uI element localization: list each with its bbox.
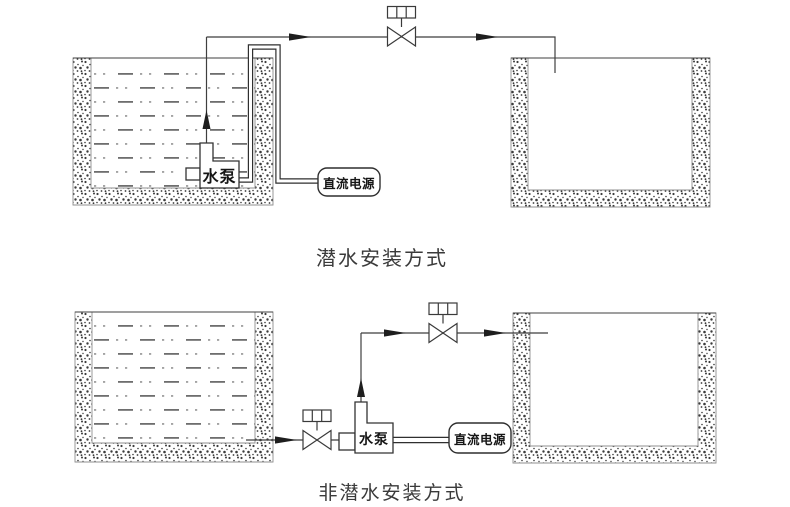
dc-power-label: 直流电源 bbox=[318, 168, 380, 196]
tank-top-right-wall bbox=[511, 58, 710, 207]
water bbox=[91, 62, 255, 443]
power-cable-top bbox=[239, 47, 318, 181]
pump-label: 水泵 bbox=[355, 424, 393, 453]
gate-valve-icon bbox=[303, 410, 331, 450]
flow-arrow-icon bbox=[275, 436, 297, 443]
diagram-caption-submersible: 潜水安装方式 bbox=[262, 243, 502, 269]
tank-bottom-right-wall bbox=[513, 313, 716, 463]
gate-valve-icon bbox=[388, 7, 416, 47]
gate-valve-icon bbox=[429, 303, 457, 343]
pump-inlet-stub bbox=[186, 168, 200, 180]
flow-arrow-icon bbox=[384, 329, 406, 336]
pump-label: 水泵 bbox=[200, 161, 239, 188]
water-bottom-left-tank bbox=[92, 314, 255, 443]
dc-power-label: 直流电源 bbox=[449, 423, 511, 453]
diagram-caption-non-submersible: 非潜水安装方式 bbox=[272, 478, 512, 504]
flow-arrow-icon bbox=[484, 329, 506, 336]
flow-arrow-icon bbox=[476, 33, 498, 40]
pump-inlet-stub bbox=[339, 433, 355, 450]
flow-arrow-icon bbox=[289, 33, 311, 40]
flow-arrow-icon bbox=[357, 378, 365, 397]
diagram-canvas: 水泵 直流电源 潜水安装方式 水泵 直流电源 非潜水安装方式 bbox=[0, 0, 790, 507]
